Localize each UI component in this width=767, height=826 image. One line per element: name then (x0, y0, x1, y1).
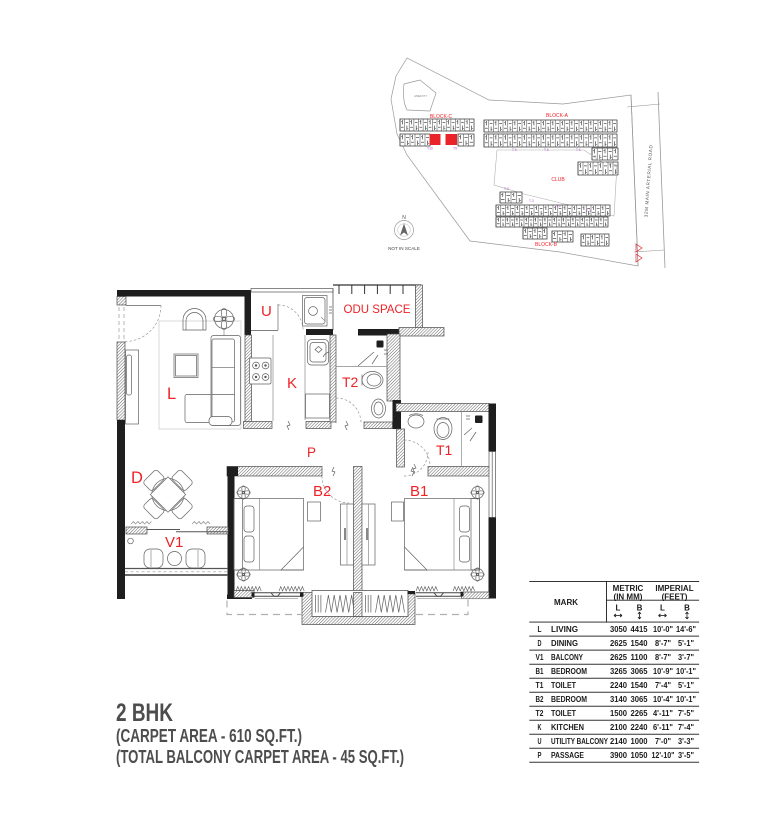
svg-text:PASSAGE: PASSAGE (551, 751, 585, 760)
svg-text:L: L (616, 604, 621, 613)
svg-text:(IN MM): (IN MM) (614, 593, 643, 602)
svg-text:B2: B2 (536, 695, 544, 704)
svg-text:BLOCK-B: BLOCK-B (535, 242, 558, 248)
svg-text:5'-1": 5'-1" (678, 639, 694, 648)
svg-text:LIVING: LIVING (551, 625, 578, 634)
svg-text:1540: 1540 (631, 681, 649, 690)
svg-text:1540: 1540 (631, 639, 649, 648)
svg-text:(CARPET AREA - 610 SQ.FT.): (CARPET AREA - 610 SQ.FT.) (116, 726, 302, 746)
svg-text:3'-3": 3'-3" (678, 737, 694, 746)
svg-text:10'-1": 10'-1" (676, 695, 696, 704)
svg-text:T2: T2 (536, 709, 544, 718)
svg-text:B: B (637, 604, 643, 613)
svg-text:B1: B1 (536, 667, 544, 676)
svg-text:CLUB: CLUB (551, 177, 565, 183)
svg-text:L: L (167, 385, 176, 403)
svg-text:B2: B2 (313, 483, 331, 500)
svg-text:7'-0": 7'-0" (655, 737, 671, 746)
svg-text:AMENITY: AMENITY (414, 94, 427, 98)
svg-text:T2: T2 (342, 374, 359, 390)
svg-text:3140: 3140 (610, 695, 628, 704)
svg-text:MARK: MARK (554, 598, 578, 607)
svg-text:10'-1": 10'-1" (676, 667, 696, 676)
svg-text:3900: 3900 (610, 751, 628, 760)
svg-text:3050: 3050 (610, 625, 628, 634)
svg-text:NOT IN SCALE: NOT IN SCALE (388, 246, 420, 251)
svg-text:T1: T1 (536, 681, 544, 690)
svg-text:T10: T10 (427, 147, 433, 151)
svg-text:2625: 2625 (610, 653, 628, 662)
svg-text:T-3: T-3 (556, 204, 561, 208)
svg-text:U: U (538, 737, 542, 746)
svg-text:5'-1": 5'-1" (678, 681, 694, 690)
svg-text:10'-9": 10'-9" (653, 667, 673, 676)
svg-text:KITCHEN: KITCHEN (551, 723, 584, 732)
svg-text:12'-10": 12'-10" (652, 751, 675, 760)
svg-text:2265: 2265 (631, 709, 649, 718)
svg-text:BLOCK-A: BLOCK-A (546, 113, 569, 119)
svg-text:N: N (402, 215, 406, 221)
svg-text:2100: 2100 (610, 723, 628, 732)
svg-text:BEDROOM: BEDROOM (551, 667, 587, 676)
svg-text:(TOTAL BALCONY CARPET AREA - 4: (TOTAL BALCONY CARPET AREA - 45 SQ.FT.) (116, 747, 404, 767)
svg-text:4'-11": 4'-11" (653, 709, 673, 718)
svg-text:K: K (538, 723, 542, 732)
svg-text:K: K (287, 375, 297, 392)
svg-text:ODU SPACE: ODU SPACE (344, 304, 411, 316)
svg-text:7'-4": 7'-4" (678, 723, 694, 732)
svg-text:BLOCK-C: BLOCK-C (430, 114, 453, 120)
svg-text:D: D (538, 639, 542, 648)
svg-text:BEDROOM: BEDROOM (551, 695, 587, 704)
svg-text:DINING: DINING (551, 639, 578, 648)
svg-text:V1: V1 (536, 653, 544, 662)
svg-text:T-3: T-3 (529, 199, 534, 203)
svg-text:V1: V1 (165, 534, 183, 551)
svg-text:P: P (538, 751, 542, 760)
svg-text:2625: 2625 (610, 639, 628, 648)
svg-text:1500: 1500 (610, 709, 628, 718)
svg-text:TOILET: TOILET (551, 681, 576, 690)
svg-text:8'-7": 8'-7" (655, 653, 671, 662)
svg-text:T-3: T-3 (586, 209, 591, 213)
svg-text:3'-7": 3'-7" (678, 653, 694, 662)
svg-text:3265: 3265 (610, 667, 628, 676)
svg-text:14'-6": 14'-6" (676, 625, 696, 634)
svg-text:T-3: T-3 (504, 187, 509, 191)
svg-text:T9: T9 (453, 147, 457, 151)
svg-text:BALCONY: BALCONY (551, 653, 584, 662)
svg-text:L: L (660, 604, 665, 613)
svg-text:7'-4": 7'-4" (655, 681, 671, 690)
svg-text:7'-5": 7'-5" (678, 709, 694, 718)
svg-text:L: L (538, 625, 542, 634)
svg-text:2240: 2240 (631, 723, 649, 732)
svg-text:1100: 1100 (631, 653, 649, 662)
svg-text:3065: 3065 (631, 695, 649, 704)
svg-text:2140: 2140 (610, 737, 628, 746)
svg-text:3'-5": 3'-5" (678, 751, 694, 760)
svg-text:B1: B1 (410, 483, 428, 500)
svg-text:10'-4": 10'-4" (653, 695, 673, 704)
svg-text:(FEET): (FEET) (662, 593, 688, 602)
svg-text:2240: 2240 (610, 681, 628, 690)
svg-text:6'-11": 6'-11" (653, 723, 673, 732)
svg-text:10'-0": 10'-0" (653, 625, 673, 634)
svg-text:UTILITY BALCONY: UTILITY BALCONY (551, 737, 609, 746)
svg-text:3065: 3065 (631, 667, 649, 676)
svg-text:8'-7": 8'-7" (655, 639, 671, 648)
svg-text:T1: T1 (436, 442, 453, 458)
svg-text:P: P (307, 445, 316, 460)
svg-text:D: D (131, 469, 143, 487)
svg-text:1050: 1050 (631, 751, 649, 760)
svg-text:B: B (684, 604, 690, 613)
svg-text:2 BHK: 2 BHK (116, 699, 173, 727)
svg-text:U: U (261, 303, 272, 320)
svg-text:1000: 1000 (631, 737, 649, 746)
svg-text:TOILET: TOILET (551, 709, 576, 718)
svg-text:4415: 4415 (631, 625, 649, 634)
